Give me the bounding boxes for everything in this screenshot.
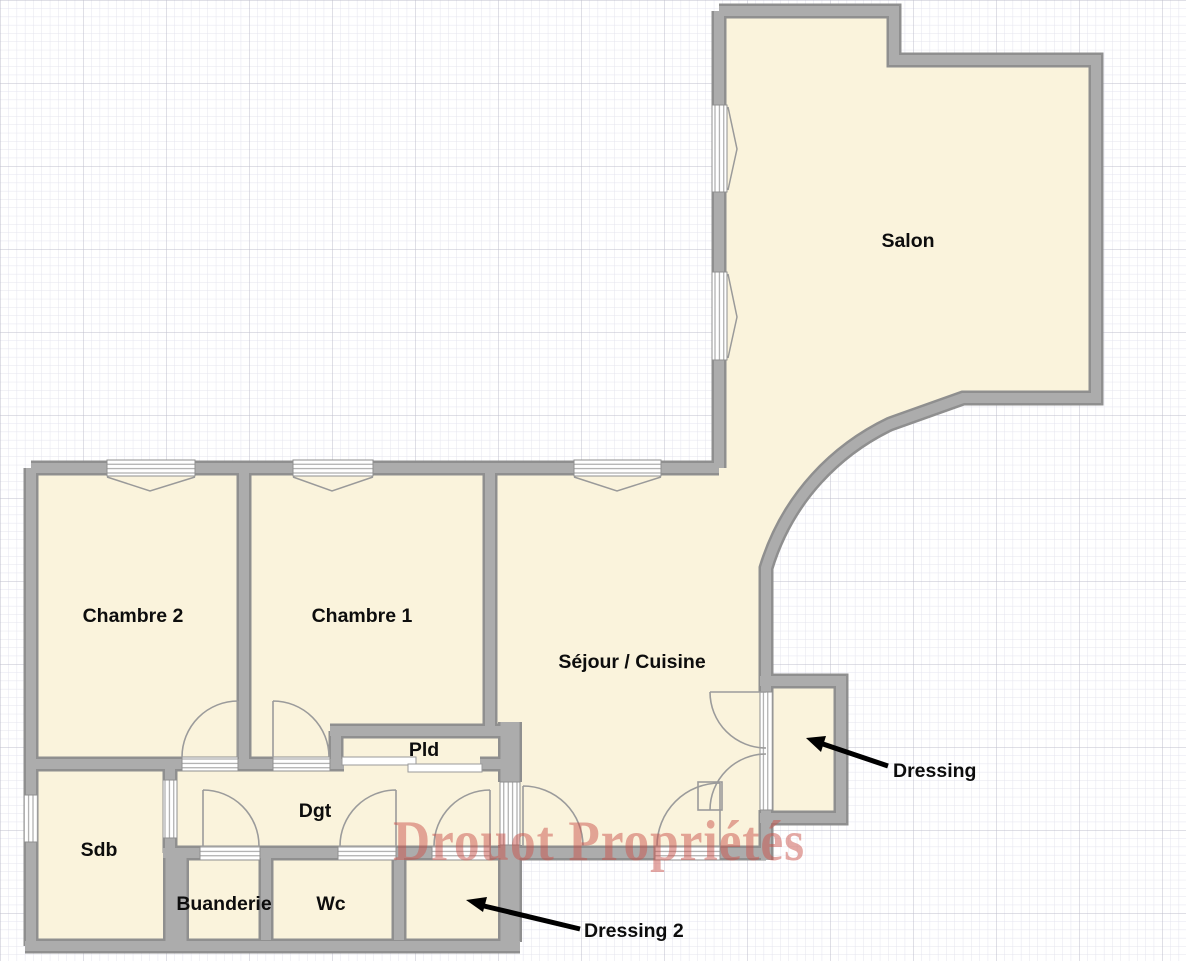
opening-wc bbox=[338, 846, 396, 860]
window-icon-sdb-dgt bbox=[163, 780, 177, 838]
window-icon-sdb-left bbox=[24, 795, 38, 842]
room-label-sejour-cuisine: Séjour / Cuisine bbox=[558, 651, 706, 673]
floor-plan: Drouot Propriétés Salon Chambre 2 Chambr… bbox=[0, 0, 1186, 961]
room-label-sdb: Sdb bbox=[81, 839, 118, 861]
annotation-label-dressing2: Dressing 2 bbox=[584, 920, 684, 942]
opening-dressing bbox=[760, 692, 773, 810]
annotation-label-dressing: Dressing bbox=[893, 760, 976, 782]
floor-plan-page: Drouot Propriétés Salon Chambre 2 Chambr… bbox=[0, 0, 1186, 961]
opening-chambre2 bbox=[182, 757, 238, 771]
room-label-salon: Salon bbox=[881, 230, 934, 252]
room-label-buanderie: Buanderie bbox=[176, 893, 272, 915]
opening-chambre1 bbox=[273, 757, 330, 771]
room-label-pld: Pld bbox=[409, 739, 439, 761]
room-label-wc: Wc bbox=[316, 893, 345, 915]
room-label-chambre1: Chambre 1 bbox=[312, 605, 413, 627]
opening-buanderie bbox=[200, 846, 260, 860]
room-label-dgt: Dgt bbox=[299, 800, 332, 822]
watermark: Drouot Propriétés bbox=[393, 810, 805, 873]
room-label-chambre2: Chambre 2 bbox=[83, 605, 184, 627]
